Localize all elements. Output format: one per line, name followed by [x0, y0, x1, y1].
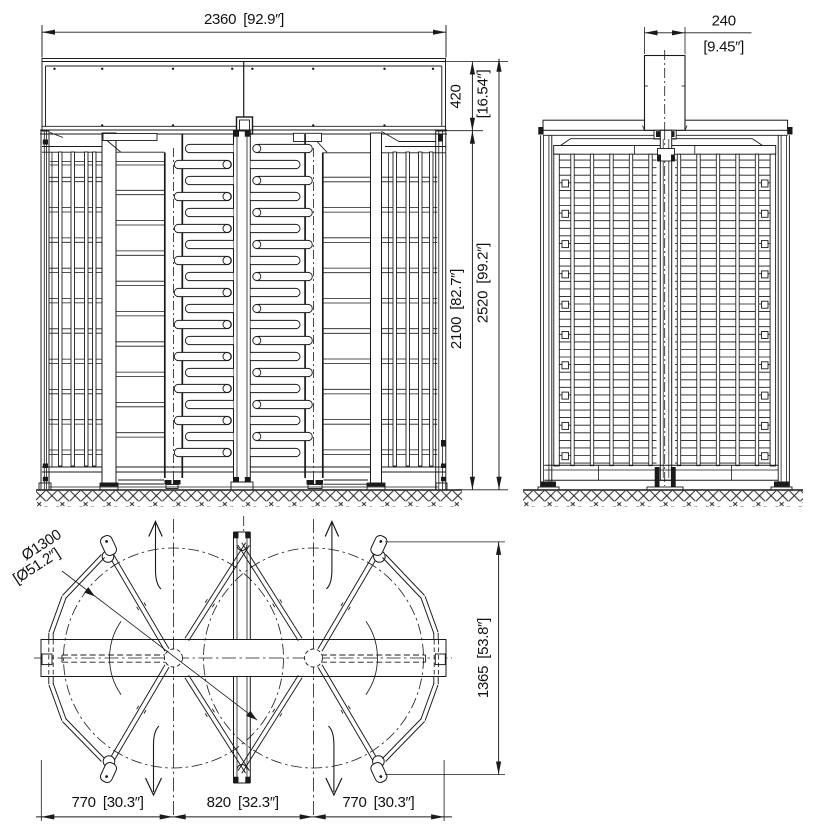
svg-text:[16.54″]: [16.54″] — [475, 69, 492, 118]
svg-text:[9.45″]: [9.45″] — [703, 39, 744, 56]
svg-text:2100 [82.7″]: 2100 [82.7″] — [448, 269, 465, 349]
svg-text:2520 [99.2″]: 2520 [99.2″] — [475, 243, 492, 323]
svg-text:240: 240 — [712, 13, 736, 30]
svg-text:420: 420 — [448, 84, 465, 108]
svg-text:770 [30.3″]: 770 [30.3″] — [342, 794, 414, 811]
svg-text:770 [30.3″]: 770 [30.3″] — [72, 794, 144, 811]
svg-text:2360 [92.9″]: 2360 [92.9″] — [204, 11, 284, 28]
svg-text:820 [32.3″]: 820 [32.3″] — [207, 794, 279, 811]
svg-text:1365 [53.8″]: 1365 [53.8″] — [475, 618, 492, 698]
